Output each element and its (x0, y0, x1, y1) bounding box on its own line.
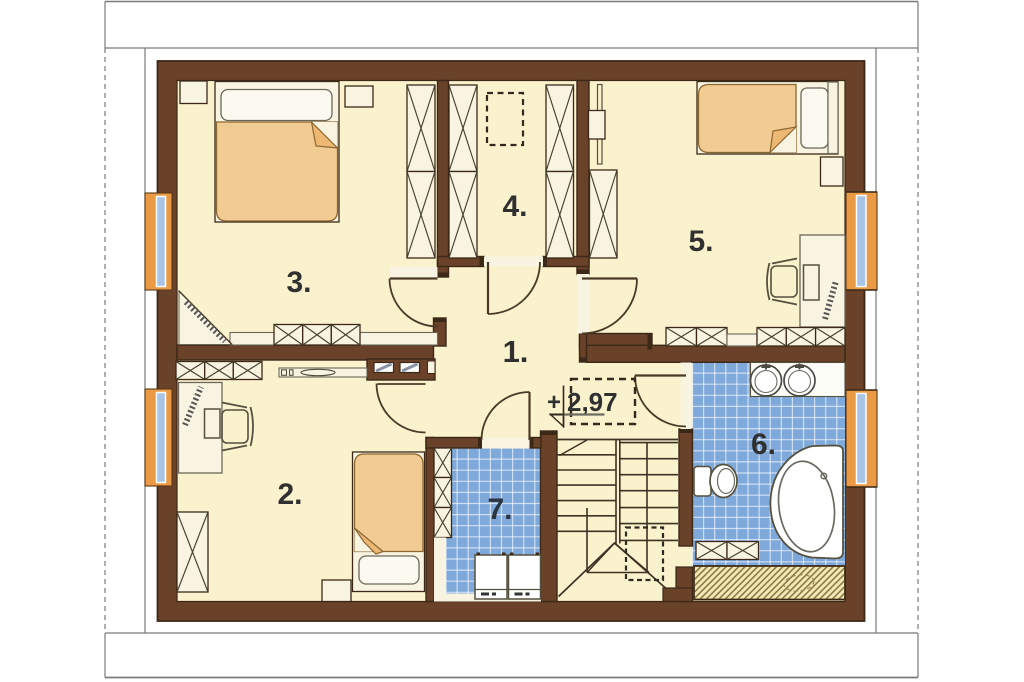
svg-text:3.: 3. (286, 266, 311, 299)
svg-text:5.: 5. (688, 225, 713, 258)
svg-text:6.: 6. (751, 428, 776, 461)
svg-text:4.: 4. (502, 190, 527, 223)
svg-text:2.: 2. (277, 478, 302, 511)
svg-text:7.: 7. (487, 493, 512, 526)
svg-text:+: + (547, 389, 561, 416)
svg-text:2,97: 2,97 (567, 387, 618, 417)
svg-text:1.: 1. (503, 334, 529, 369)
